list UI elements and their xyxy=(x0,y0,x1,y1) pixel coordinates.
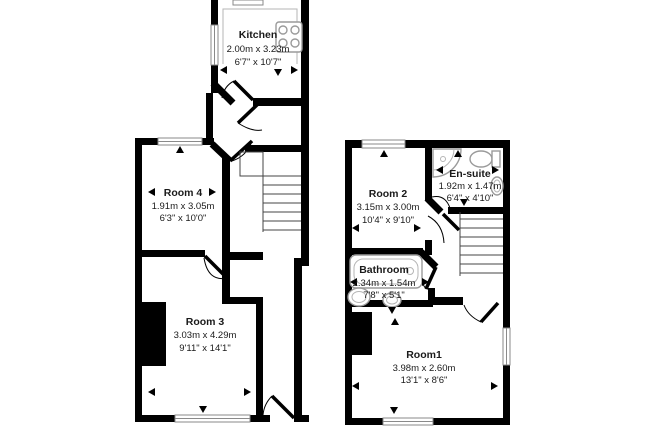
kitchen-door-leaf xyxy=(234,81,253,100)
arrow-left xyxy=(352,224,359,232)
room-label-room3: Room 3 3.03m x 4.29m 9'11" x 14'1" xyxy=(174,316,237,354)
toilet-icon xyxy=(470,151,500,167)
window xyxy=(233,0,263,5)
room-label-room1: Room1 3.98m x 2.60m 13'1" x 8'6" xyxy=(393,349,456,386)
svg-text:Room1: Room1 xyxy=(406,349,442,361)
svg-text:6'3" x 10'0": 6'3" x 10'0" xyxy=(160,213,207,224)
arrow-left xyxy=(148,188,155,196)
svg-text:Room 2: Room 2 xyxy=(369,188,408,200)
arrow-right xyxy=(209,188,216,196)
hall-door-leaf xyxy=(238,104,258,123)
arrow-right xyxy=(291,66,298,74)
floorplan-page: Kitchen 2.00m x 3.23m 6'7" x 10'7" Room … xyxy=(0,0,645,430)
room-label-room4: Room 4 1.91m x 3.05m 6'3" x 10'0" xyxy=(152,187,215,224)
floor-plan-svg: Kitchen 2.00m x 3.23m 6'7" x 10'7" Room … xyxy=(0,0,645,430)
chimney-breast-room1 xyxy=(352,312,372,355)
arrow-right xyxy=(244,388,251,396)
arrow-down xyxy=(274,69,282,76)
svg-text:7'8" x 5'1": 7'8" x 5'1" xyxy=(363,290,405,301)
svg-text:2.34m x 1.54m: 2.34m x 1.54m xyxy=(353,278,416,289)
svg-text:10'4" x 9'10": 10'4" x 9'10" xyxy=(362,215,414,226)
ground-floor-doors xyxy=(204,81,294,418)
svg-text:Bathroom: Bathroom xyxy=(359,264,409,276)
svg-text:Room 3: Room 3 xyxy=(186,316,225,328)
arrow-right xyxy=(414,224,421,232)
room1-door-swing xyxy=(464,305,481,322)
chimney-breast-room3 xyxy=(142,302,166,366)
svg-text:13'1" x 8'6": 13'1" x 8'6" xyxy=(401,375,448,386)
svg-text:Room 4: Room 4 xyxy=(164,187,203,199)
bathroom-door-leaf xyxy=(426,267,436,289)
stairs-first xyxy=(460,212,503,276)
svg-text:1.92m x 1.47m: 1.92m x 1.47m xyxy=(439,181,502,192)
arrow-left xyxy=(148,388,155,396)
ensuite-door-jamb-wall xyxy=(427,198,441,212)
svg-text:3.15m x 3.00m: 3.15m x 3.00m xyxy=(357,202,420,213)
room2-door-swing xyxy=(428,216,444,243)
arrow-up xyxy=(391,318,399,325)
svg-text:9'11" x 14'1": 9'11" x 14'1" xyxy=(179,343,230,354)
svg-text:6'4" x 4'10": 6'4" x 4'10" xyxy=(447,193,494,204)
svg-text:2.00m x 3.23m: 2.00m x 3.23m xyxy=(227,44,290,55)
arrow-right xyxy=(491,382,498,390)
arrow-down xyxy=(390,407,398,414)
ensuite-door-leaf xyxy=(443,214,459,230)
room-label-room2: Room 2 3.15m x 3.00m 10'4" x 9'10" xyxy=(357,188,420,226)
svg-text:3.98m x 2.60m: 3.98m x 2.60m xyxy=(393,363,456,374)
svg-text:Kitchen: Kitchen xyxy=(239,29,278,41)
arrow-left xyxy=(220,66,227,74)
front-door-leaf xyxy=(272,396,294,418)
stairs-ground xyxy=(240,152,301,232)
arrow-left xyxy=(352,382,359,390)
svg-text:En-suite: En-suite xyxy=(449,168,491,180)
front-door-swing xyxy=(263,396,272,415)
svg-text:1.91m x 3.05m: 1.91m x 3.05m xyxy=(152,201,215,212)
arrow-up xyxy=(176,146,184,153)
arrow-down xyxy=(199,406,207,413)
svg-text:6'7" x 10'7": 6'7" x 10'7" xyxy=(235,57,282,68)
hall-door-swing xyxy=(238,123,262,130)
arrow-down xyxy=(388,307,396,314)
first-floor-plan: Room 2 3.15m x 3.00m 10'4" x 9'10" En-su… xyxy=(345,140,510,425)
ground-floor-plan: Kitchen 2.00m x 3.23m 6'7" x 10'7" Room … xyxy=(135,0,309,422)
arrow-up xyxy=(380,150,388,157)
room4-door-jamb-wall xyxy=(212,144,230,161)
svg-text:3.03m x 4.29m: 3.03m x 4.29m xyxy=(174,330,237,341)
room1-door-leaf xyxy=(481,303,498,322)
